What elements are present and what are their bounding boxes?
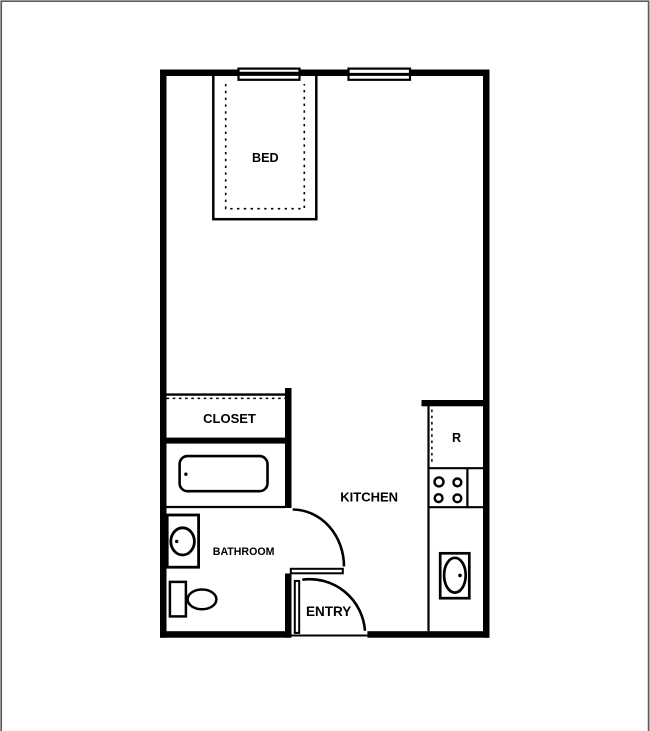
svg-text:KITCHEN: KITCHEN [340, 489, 398, 504]
svg-text:BATHROOM: BATHROOM [213, 546, 275, 558]
svg-text:R: R [452, 431, 461, 445]
svg-text:BED: BED [252, 151, 279, 165]
svg-text:ENTRY: ENTRY [306, 604, 351, 619]
svg-text:CLOSET: CLOSET [203, 411, 256, 426]
